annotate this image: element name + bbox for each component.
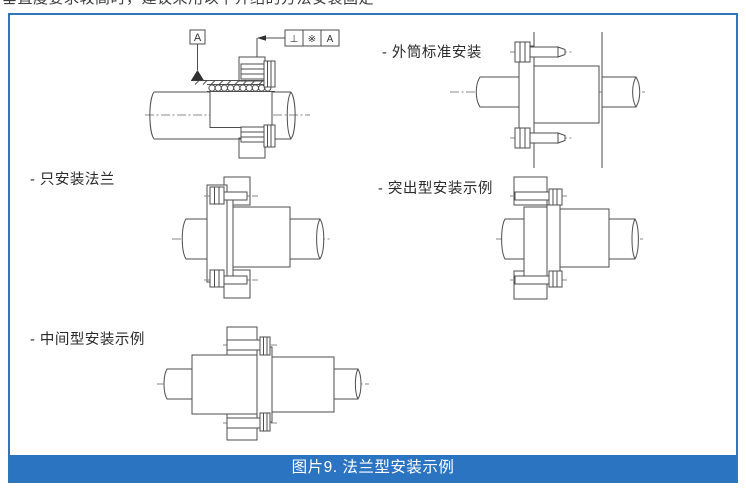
tolerance-datum: A xyxy=(327,34,334,45)
tolerance-value: ※ xyxy=(308,34,316,45)
nut-body xyxy=(534,66,599,123)
nut-body xyxy=(233,207,290,267)
right-cylinder xyxy=(272,357,334,412)
bottom-bolt-housing xyxy=(239,125,275,158)
figure-frame: - 外筒标准安装 - 只安装法兰 - 突出型安装示例 - 中间型安装示例 xyxy=(8,13,738,483)
leader-arrow-icon xyxy=(257,35,266,41)
flange-protrusion xyxy=(547,205,560,282)
nut-and-balls xyxy=(191,81,275,128)
figure-caption: 图片9. 法兰型安装示例 xyxy=(10,455,736,481)
top-bolt xyxy=(510,42,572,62)
center-flange xyxy=(257,347,272,422)
top-mount-block xyxy=(514,177,547,205)
diagram-intermediate xyxy=(157,325,372,443)
diagram-protruding xyxy=(496,172,646,304)
flange-ring xyxy=(524,207,547,280)
clipped-top-text-line: 垂直度要求较高时，建议采用以下介绍的方法安装固定 xyxy=(2,0,602,8)
datum-letter: A xyxy=(194,32,202,44)
label-protruding: - 突出型安装示例 xyxy=(378,177,493,198)
diagram-flange-only xyxy=(170,174,335,304)
label-intermediate: - 中间型安装示例 xyxy=(30,328,145,349)
label-flange-only: - 只安装法兰 xyxy=(30,168,115,189)
datum-triangle-icon xyxy=(191,70,204,81)
perpendicularity-icon: ⊥ xyxy=(290,34,299,45)
bottom-bolt xyxy=(510,128,572,148)
datum-symbol: A xyxy=(190,30,205,81)
left-cylinder xyxy=(192,355,257,414)
diagram-datum-tolerance: A ⊥ ※ A xyxy=(145,28,345,160)
nut-body xyxy=(560,209,609,267)
diagram-outer-standard xyxy=(450,30,645,170)
tolerance-frame: ⊥ ※ A xyxy=(257,30,339,57)
flange-pilot xyxy=(227,194,233,276)
